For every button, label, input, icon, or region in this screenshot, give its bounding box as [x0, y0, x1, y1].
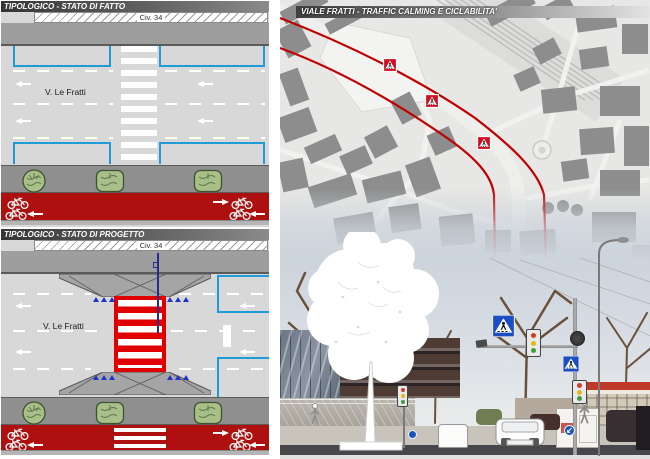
lane-marking: [13, 293, 91, 295]
road-arrow-icon: [197, 118, 213, 124]
sketch-car: [493, 416, 547, 450]
raised-crossing-marker-icon: [477, 136, 491, 150]
parking-bay: [217, 357, 269, 399]
road-arrow-icon: [239, 349, 255, 355]
urban-design-board: TIPOLOGICO - STATO DI FATTO Civ. 34 V. L…: [0, 0, 650, 459]
bike-lane: [1, 425, 269, 450]
parking-slot-mark: [223, 325, 231, 347]
road-arrow-icon: [249, 442, 265, 448]
sketch-tree: [288, 232, 453, 459]
yield-triangles: [93, 367, 117, 385]
parking-bay: [159, 46, 265, 67]
road-arrow-icon: [15, 349, 31, 355]
lane-marking: [165, 103, 265, 105]
photomontage-panel: [280, 258, 650, 459]
lane-marking: [13, 103, 113, 105]
lane-marking: [13, 137, 113, 139]
tree-median: [1, 397, 269, 425]
road-arrow-icon: [15, 303, 31, 309]
tree-icon: [21, 400, 47, 426]
parking-bay: [217, 275, 269, 313]
crossing-bar: [114, 428, 166, 432]
street-name-label: V. Le Fratti: [43, 321, 84, 331]
crossing-bar: [114, 436, 166, 440]
yield-triangles: [93, 289, 117, 307]
road-arrow-icon: [15, 118, 31, 124]
parking-bay: [13, 46, 111, 67]
pedestrian-crossing-sign-icon: [492, 315, 515, 337]
road-arrow-icon: [249, 211, 265, 217]
bicycle-icon: [229, 207, 251, 220]
tree-icon: [193, 401, 223, 425]
panel-title-progetto: TIPOLOGICO - STATO DI PROGETTO: [1, 229, 269, 240]
road-arrow-icon: [27, 442, 43, 448]
traffic-light-icon: [526, 329, 541, 357]
tree-icon: [193, 169, 223, 193]
tree-icon: [21, 168, 47, 194]
road-arrow-icon: [213, 199, 229, 205]
map-title: VIALE FRATTI - TRAFFIC CALMING E CICLABI…: [296, 6, 650, 18]
lane-marking: [171, 330, 265, 332]
raised-crossing-marker-icon: [383, 58, 397, 72]
street-light: [585, 236, 650, 459]
tree-icon: [95, 169, 125, 193]
yield-triangles: [167, 289, 191, 307]
road-arrow-icon: [197, 81, 213, 87]
lane-marking: [165, 70, 265, 72]
parking-bay: [159, 142, 265, 164]
tree-median: [1, 165, 269, 193]
lane-marking: [165, 137, 265, 139]
panel-stato-di-progetto: TIPOLOGICO - STATO DI PROGETTO Civ. 34: [1, 229, 269, 455]
lane-marking: [13, 368, 91, 370]
pedestrian-crossing-sign-icon: [563, 356, 579, 372]
road-arrow-icon: [15, 81, 31, 87]
tree-icon: [95, 401, 125, 425]
sidewalk-top: [1, 251, 269, 274]
curb-strip: [1, 220, 269, 225]
signal-head-symbol: [153, 262, 159, 268]
bicycle-icon: [5, 207, 27, 220]
bike-lane: [1, 193, 269, 220]
raised-crossing-marker-icon: [425, 94, 439, 108]
map-panel: VIALE FRATTI - TRAFFIC CALMING E CICLABI…: [280, 0, 650, 260]
curb-strip: [1, 450, 269, 455]
road-arrow-icon: [27, 211, 43, 217]
civic-number-band: Civ. 34: [34, 12, 268, 23]
parking-bay: [13, 142, 111, 164]
sidewalk-top: [1, 23, 269, 46]
lane-marking: [13, 70, 113, 72]
zebra-crossing: [121, 46, 157, 165]
round-arrow-sign-icon: [564, 425, 575, 436]
crossing-bar: [114, 444, 166, 448]
civic-number-band: Civ. 34: [34, 240, 268, 251]
panel-stato-di-fatto: TIPOLOGICO - STATO DI FATTO Civ. 34 V. L…: [1, 1, 269, 227]
panel-title-fatto: TIPOLOGICO - STATO DI FATTO: [1, 1, 269, 12]
signal-back-disc: [570, 331, 585, 346]
street-name-label: V. Le Fratti: [45, 87, 86, 97]
road-arrow-icon: [213, 430, 229, 436]
